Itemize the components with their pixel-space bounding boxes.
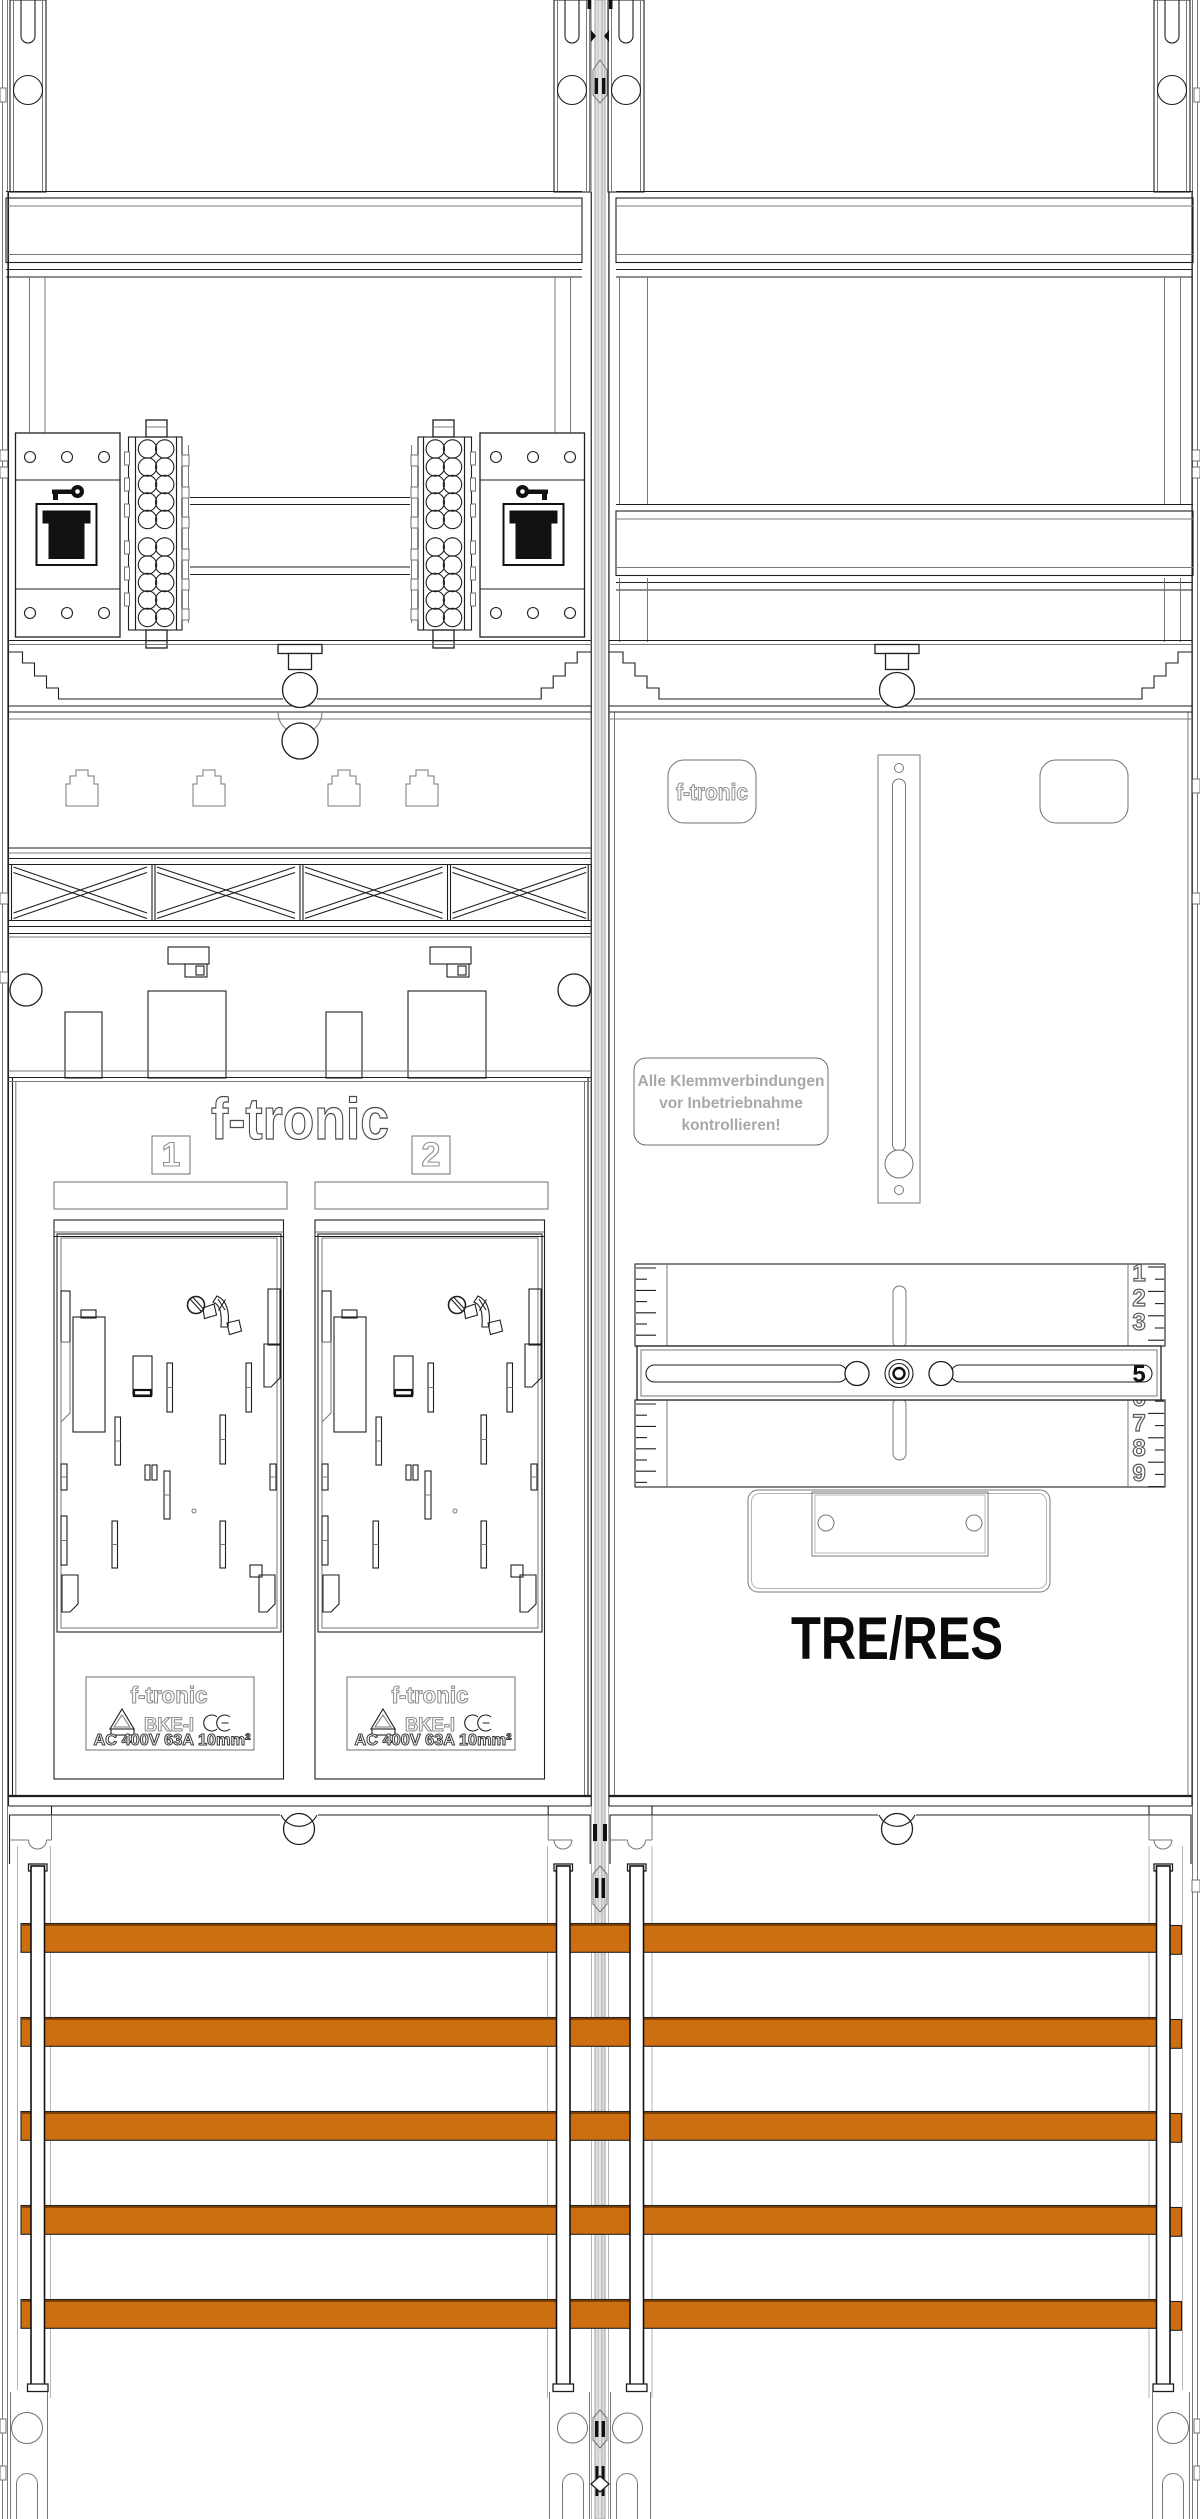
svg-text:8: 8: [1132, 1435, 1145, 1462]
svg-text:2: 2: [1132, 1285, 1145, 1312]
svg-text:AC 400V 63A 10mm²: AC 400V 63A 10mm²: [94, 1732, 251, 1749]
svg-text:7: 7: [1132, 1410, 1145, 1437]
svg-text:AC 400V 63A 10mm²: AC 400V 63A 10mm²: [355, 1732, 512, 1749]
svg-text:Alle Klemmverbindungen: Alle Klemmverbindungen: [638, 1073, 825, 1090]
svg-text:f-tronic: f-tronic: [211, 1087, 389, 1152]
svg-text:9: 9: [1132, 1460, 1145, 1487]
svg-text:f-tronic: f-tronic: [676, 779, 748, 805]
svg-text:1: 1: [1132, 1260, 1145, 1287]
svg-text:1: 1: [162, 1136, 181, 1174]
svg-text:3: 3: [1132, 1309, 1145, 1336]
svg-text:vor Inbetriebnahme: vor Inbetriebnahme: [659, 1095, 803, 1112]
svg-text:f-tronic: f-tronic: [392, 1682, 469, 1708]
svg-text:5: 5: [1132, 1361, 1145, 1388]
svg-text:TRE/RES: TRE/RES: [791, 1605, 1003, 1672]
svg-text:2: 2: [422, 1136, 441, 1174]
svg-text:f-tronic: f-tronic: [131, 1682, 208, 1708]
svg-text:kontrollieren!: kontrollieren!: [681, 1117, 780, 1134]
